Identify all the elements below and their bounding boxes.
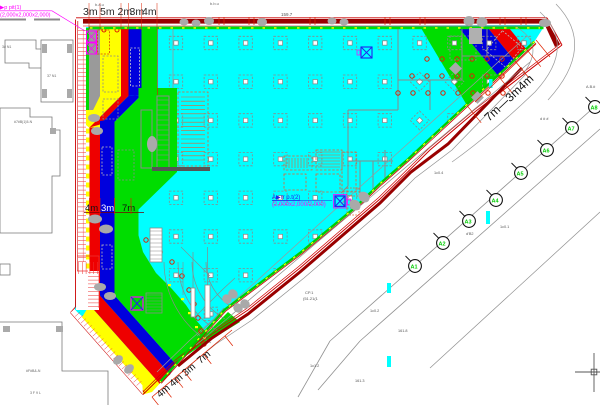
- svg-text:(51.21(1: (51.21(1: [303, 296, 319, 301]
- svg-text:A1: A1: [411, 265, 418, 271]
- svg-text:A.B.#: A.B.#: [586, 85, 596, 89]
- svg-text:1c0.1: 1c0.1: [500, 225, 509, 229]
- svg-text:(2,000x2,000x2,000): (2,000x2,000x2,000): [0, 13, 51, 19]
- svg-text:A5: A5: [517, 172, 524, 178]
- svg-text:▶p pit(1): ▶p pit(1): [0, 5, 22, 11]
- svg-text:161.3: 161.3: [355, 379, 365, 383]
- svg-text:#F#B&-N: #F#B&-N: [26, 369, 41, 373]
- svg-text:3m: 3m: [83, 6, 98, 18]
- svg-text:A6: A6: [543, 149, 550, 155]
- svg-text:5m: 5m: [100, 6, 115, 18]
- svg-text:1c1.2: 1c1.2: [310, 364, 319, 368]
- svg-text:b.b.u: b.b.u: [210, 1, 219, 6]
- svg-text:3# N1: 3# N1: [2, 45, 11, 49]
- svg-text:37 N1: 37 N1: [47, 74, 56, 78]
- svg-text:1c0.4: 1c0.4: [434, 171, 443, 175]
- svg-text:A4: A4: [492, 199, 500, 205]
- svg-text:1c0.2: 1c0.2: [370, 309, 379, 313]
- svg-text:3 F 9 L: 3 F 9 L: [30, 391, 41, 395]
- svg-text:A▶rr p.t(2): A▶rr p.t(2): [272, 195, 300, 201]
- svg-text:161.8: 161.8: [398, 329, 408, 333]
- svg-text:A8: A8: [591, 106, 598, 112]
- svg-text:CP.1: CP.1: [305, 290, 314, 295]
- svg-text:(2,000x2,000/2,000): (2,000x2,000/2,000): [272, 202, 326, 208]
- svg-text:#7#B(1)5-N: #7#B(1)5-N: [14, 120, 33, 124]
- svg-text:A2: A2: [439, 242, 446, 248]
- svg-text:b.a.u: b.a.u: [95, 2, 104, 7]
- svg-text:159.7: 159.7: [281, 12, 293, 17]
- svg-text:d'B2: d'B2: [466, 232, 473, 236]
- svg-text:A3: A3: [465, 220, 472, 226]
- svg-text:d # #: d # #: [540, 117, 549, 121]
- svg-text:A7: A7: [568, 127, 575, 133]
- svg-text:4m: 4m: [142, 6, 157, 18]
